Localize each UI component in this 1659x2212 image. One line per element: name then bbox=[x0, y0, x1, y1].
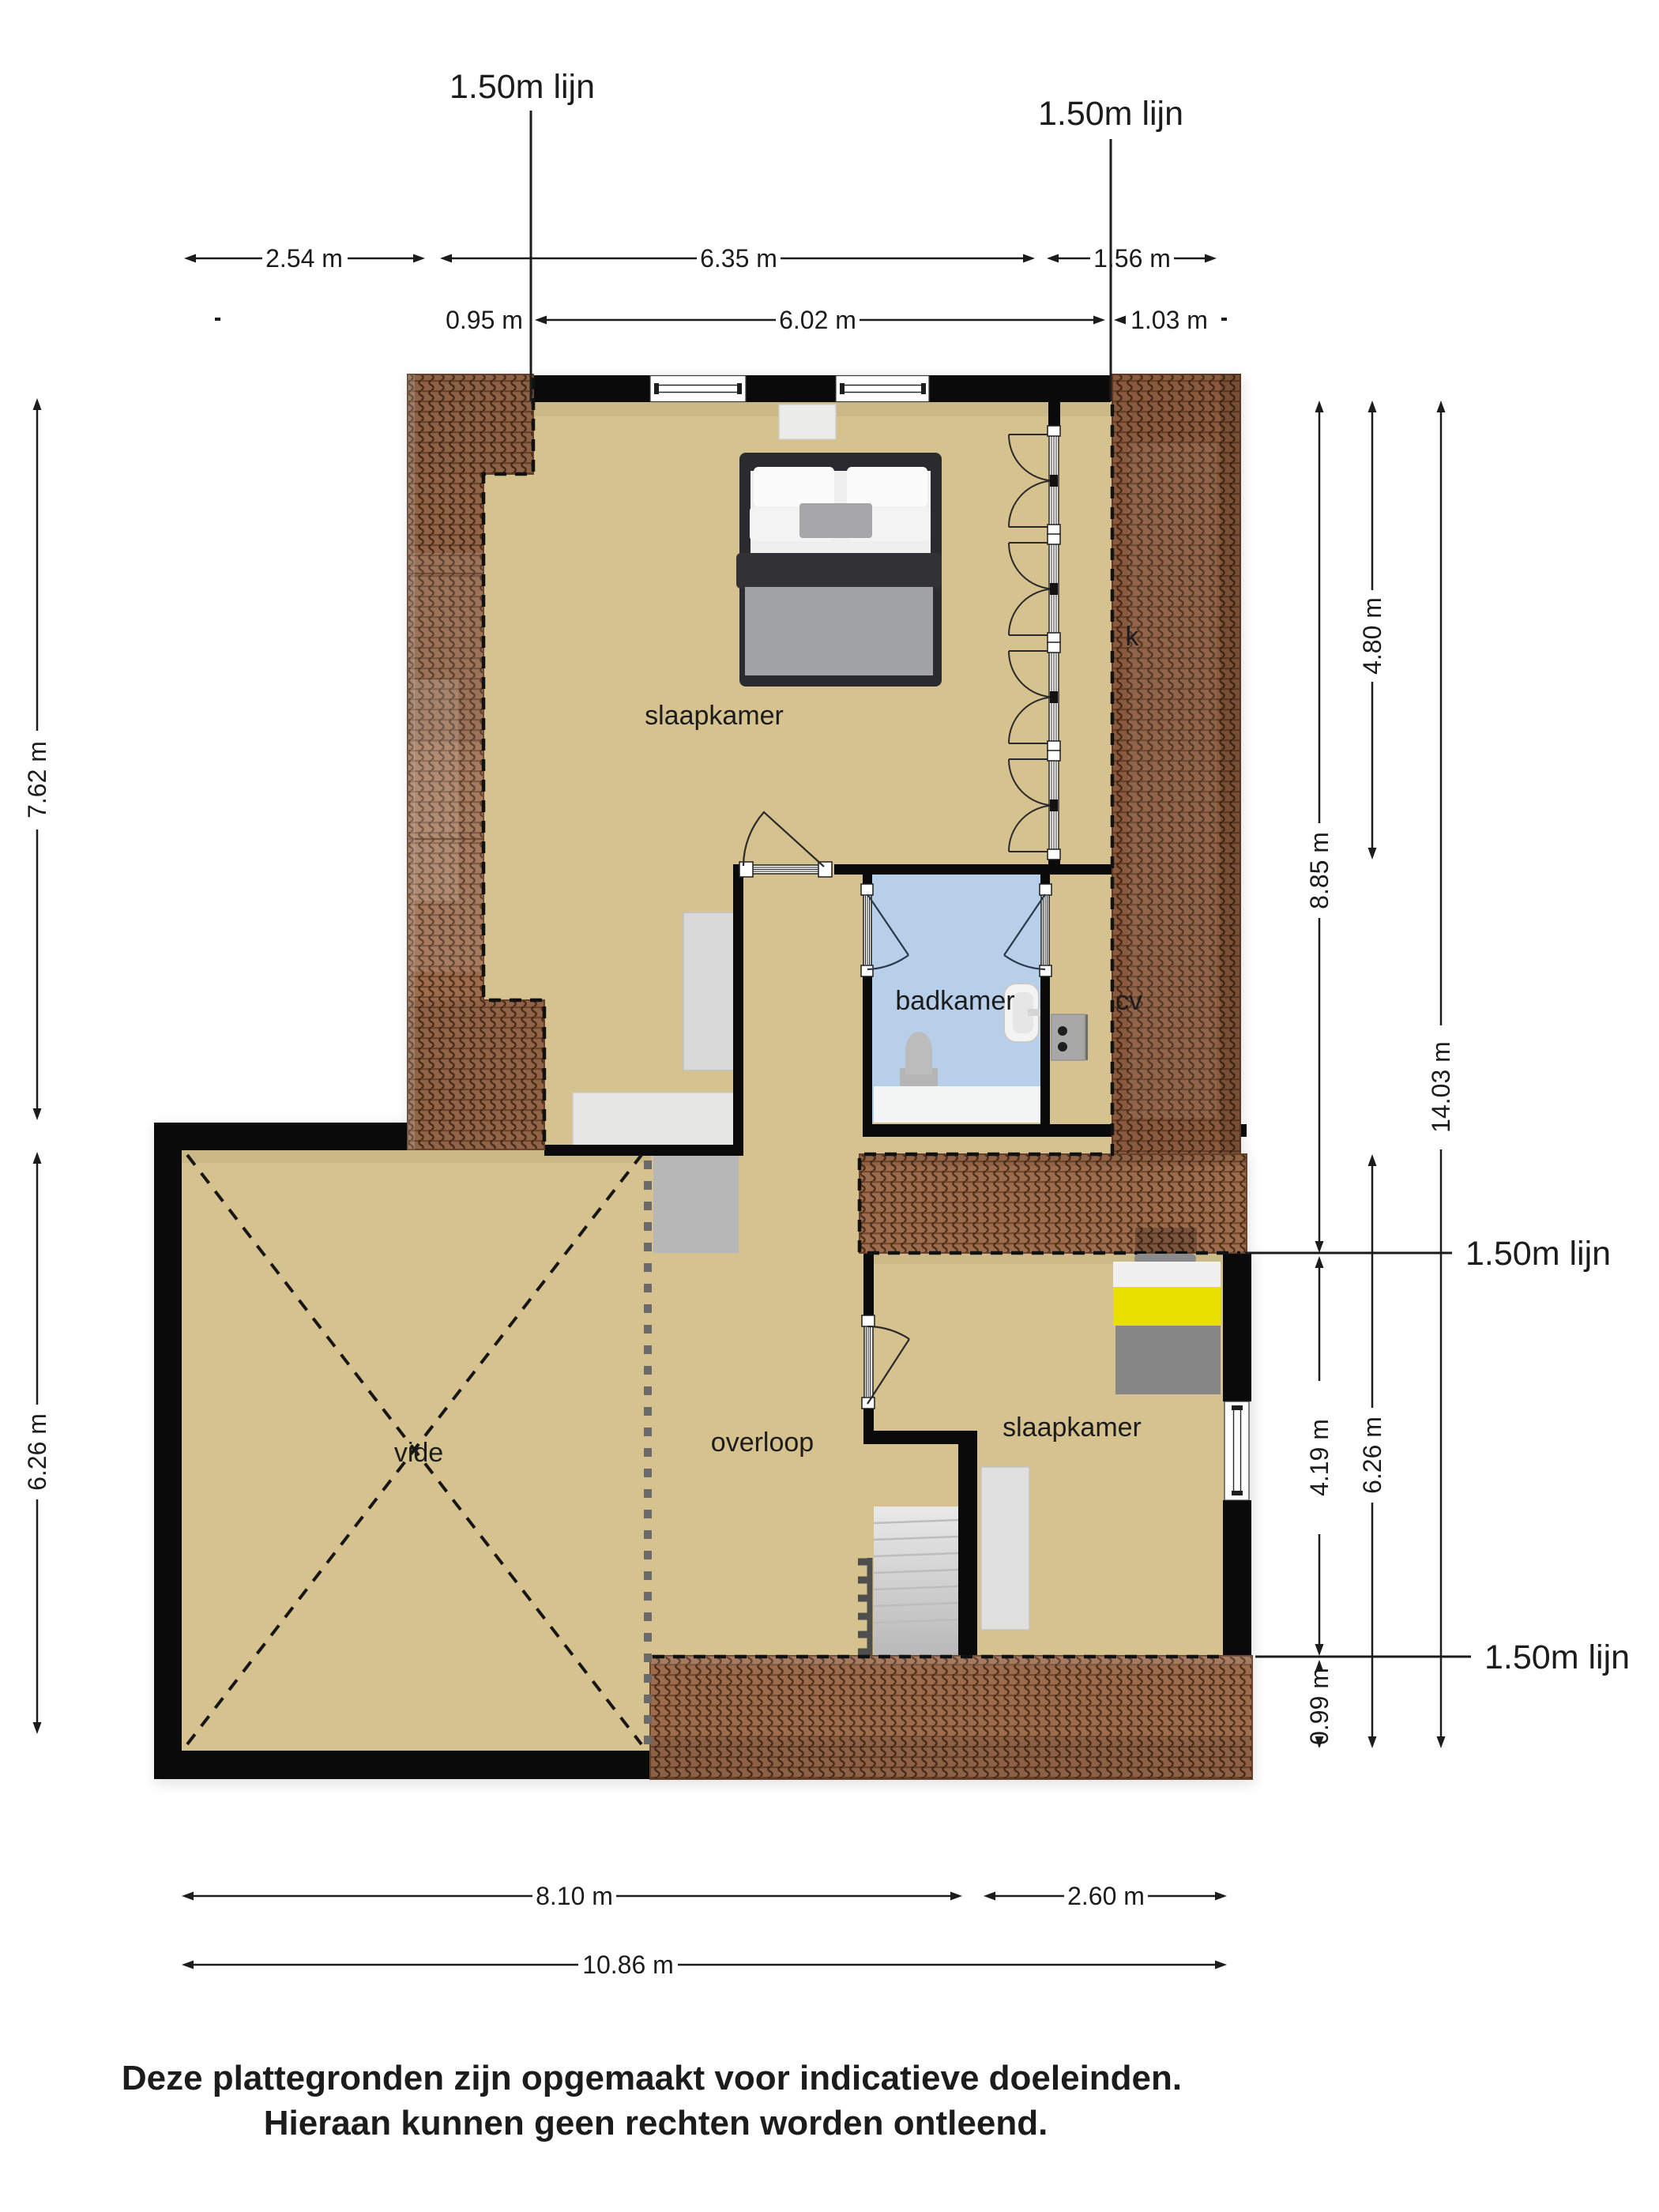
svg-text:10.86 m: 10.86 m bbox=[582, 1951, 674, 1979]
svg-text:6.35 m: 6.35 m bbox=[700, 244, 777, 273]
svg-text:6.26 m: 6.26 m bbox=[23, 1413, 51, 1491]
svg-text:slaapkamer: slaapkamer bbox=[645, 701, 784, 731]
svg-text:8.10 m: 8.10 m bbox=[536, 1882, 613, 1910]
svg-text:2.54 m: 2.54 m bbox=[265, 244, 343, 273]
svg-text:0.95 m: 0.95 m bbox=[446, 306, 523, 334]
svg-text:1.50m lijn: 1.50m lijn bbox=[450, 68, 595, 106]
svg-text:badkamer: badkamer bbox=[895, 986, 1014, 1016]
svg-text:1.50m lijn: 1.50m lijn bbox=[1038, 95, 1183, 133]
svg-text:0.99 m: 0.99 m bbox=[1305, 1668, 1334, 1745]
svg-text:6.02 m: 6.02 m bbox=[779, 306, 856, 334]
svg-text:slaapkamer: slaapkamer bbox=[1003, 1413, 1142, 1443]
svg-text:k: k bbox=[1126, 622, 1140, 652]
svg-text:14.03 m: 14.03 m bbox=[1427, 1041, 1455, 1133]
svg-text:cv: cv bbox=[1115, 986, 1142, 1016]
svg-text:Deze plattegronden zijn opgema: Deze plattegronden zijn opgemaakt voor i… bbox=[122, 2059, 1182, 2097]
svg-text:Hieraan kunnen geen rechten wo: Hieraan kunnen geen rechten worden ontle… bbox=[264, 2104, 1048, 2142]
svg-text:vide: vide bbox=[394, 1438, 443, 1468]
svg-text:6.26 m: 6.26 m bbox=[1358, 1416, 1386, 1494]
svg-text:8.85 m: 8.85 m bbox=[1305, 832, 1334, 909]
svg-text:1.56 m: 1.56 m bbox=[1093, 244, 1171, 273]
svg-text:4.19 m: 4.19 m bbox=[1305, 1419, 1334, 1496]
svg-text:2.60 m: 2.60 m bbox=[1067, 1882, 1145, 1910]
svg-text:1.03 m: 1.03 m bbox=[1130, 306, 1208, 334]
svg-text:7.62 m: 7.62 m bbox=[23, 741, 51, 818]
svg-text:overloop: overloop bbox=[711, 1428, 814, 1458]
svg-text:4.80 m: 4.80 m bbox=[1358, 597, 1386, 675]
svg-text:1.50m lijn: 1.50m lijn bbox=[1484, 1638, 1630, 1676]
svg-text:1.50m lijn: 1.50m lijn bbox=[1465, 1235, 1611, 1273]
